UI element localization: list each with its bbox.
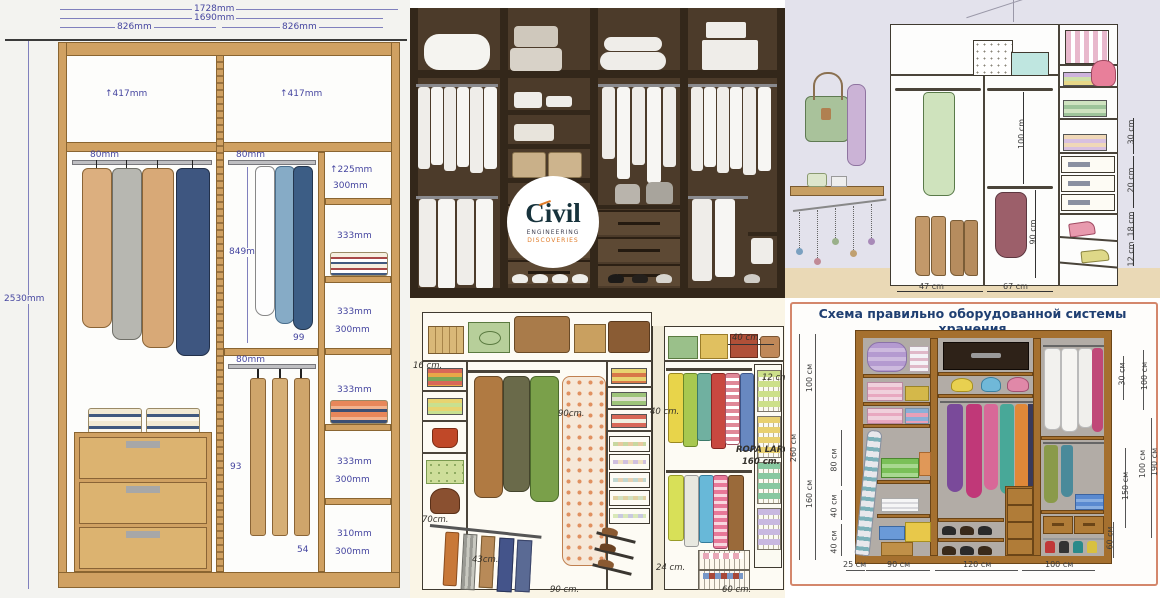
drawer-handle [1083, 523, 1095, 526]
dim-150cm: 150 см [1122, 472, 1130, 500]
dresser [74, 432, 212, 572]
dim-12cm: 12 cm [1127, 242, 1135, 267]
dim-line [728, 344, 774, 345]
folded-towels [546, 96, 572, 107]
shirt-lime [683, 373, 698, 447]
hat-blue [981, 377, 1001, 392]
white-coat [1061, 348, 1078, 432]
yellow-folded [905, 386, 929, 401]
logo-line1: ENGINEERING [527, 229, 580, 236]
panel-walkin-sketch: 16 cm. 40 cm. 12 cm. 90cm. 40 cm. 70cm. … [410, 298, 785, 598]
jewelry-strand [871, 204, 873, 238]
dim-line-height [28, 41, 29, 589]
drawer-contents [613, 478, 646, 482]
white-shirt [484, 87, 497, 169]
dim-label-1690: 1690mm [192, 14, 236, 23]
coat-tan-1 [82, 168, 112, 328]
olive-garment [1044, 445, 1058, 503]
hat-yellow [951, 378, 973, 392]
dim-90cm: 90 cm [1029, 220, 1037, 245]
handbag-clasp [821, 108, 831, 120]
dim-100cm-right-a: 100 см [1141, 362, 1149, 390]
folded-pile-left [88, 408, 142, 434]
shelf-board [325, 276, 391, 283]
shelf [1041, 436, 1104, 440]
dark-shoe [942, 546, 956, 555]
wire-basket [757, 508, 781, 550]
comp-417-right: ↑417mm [280, 90, 322, 99]
white-shirt [431, 87, 443, 165]
thin-drawer [609, 472, 650, 488]
drawer-stack [1005, 486, 1033, 556]
dark-shoe [942, 526, 956, 535]
pillow-upper [604, 37, 662, 51]
jewelry-bead [850, 250, 857, 257]
folded-pile-shelf-1 [330, 252, 388, 276]
rod [666, 368, 752, 371]
shelf-label-333a: 333mm [337, 232, 372, 241]
photo-border [410, 0, 785, 8]
drawer-handle [1068, 200, 1090, 205]
dark-shoe [978, 526, 992, 535]
rail-80-mid: 80mm [236, 151, 265, 160]
drawer-slit [618, 249, 660, 252]
printed-robe [562, 376, 606, 566]
dim-line-67 [987, 291, 1053, 292]
black-shoes [608, 274, 624, 283]
shelf-line [608, 430, 652, 432]
white-sneakers [532, 274, 548, 283]
drawer-3 [79, 527, 207, 569]
white-shirt [717, 87, 729, 173]
dim-80cm: 80 см [831, 448, 839, 471]
dim-100cm: 100 cm [1018, 119, 1026, 149]
right-partition [318, 152, 325, 572]
small-drawer [1043, 516, 1073, 534]
white-shirt [444, 87, 456, 171]
drawer-contents [613, 496, 646, 500]
dim-90cm-bottom: 90 cm. [550, 586, 579, 595]
dim-100cm-bottom: 100 см [1045, 561, 1073, 569]
logo-brand-text: Civil [525, 200, 581, 227]
shirt-blue [740, 373, 754, 451]
garment-white [684, 475, 699, 547]
rail-80-low: 80mm [236, 356, 265, 365]
shelf [748, 232, 777, 236]
white-bag [751, 238, 773, 264]
center-partition [216, 55, 224, 572]
white-shirt [457, 87, 469, 167]
dim-label-826-right: 826mm [280, 23, 319, 32]
small-drawer [1007, 488, 1033, 505]
drawer-contents [613, 442, 646, 446]
cabinet-right-side [391, 42, 400, 588]
shelf-line [422, 452, 467, 454]
shelf-line [608, 386, 652, 388]
suitcase [608, 321, 650, 353]
pink-striped-stack [867, 408, 903, 424]
dim-40cm-b: 40 см [831, 530, 839, 553]
green-box [468, 322, 510, 353]
box-oval [479, 331, 501, 345]
dim-60cm-right: 60 см [1107, 526, 1115, 549]
dim-line-120 [935, 570, 1018, 571]
drawer-handle [1068, 181, 1090, 186]
shelf-line [664, 360, 784, 362]
wicker-basket [548, 152, 582, 178]
wardrobe-design-collage: 1728mm 1690mm 826mm 826mm 2530mm ↑417mm … [0, 0, 1160, 598]
render-divider [500, 8, 508, 298]
shelf-label-333d: 333mm [337, 458, 372, 467]
pants-navy [497, 538, 515, 593]
jewelry-bead [796, 248, 803, 255]
jewelry-strand [835, 208, 837, 238]
dark-shoe [960, 526, 974, 535]
green-stack [881, 458, 919, 478]
dress-purple [947, 404, 963, 492]
dress-teal [1000, 404, 1014, 494]
hat-pink [1007, 377, 1029, 392]
shirt-darkblue [293, 166, 313, 330]
folded-linen [514, 124, 554, 141]
thin-drawer [609, 490, 650, 506]
shelf-board [325, 498, 391, 505]
dim-40cm-top: 40 cm. [732, 334, 761, 343]
hanging-rail-left [72, 160, 212, 165]
shelf-label-300d: 300mm [335, 548, 370, 557]
black-shoes [632, 274, 648, 283]
hat-box-upper [514, 26, 558, 47]
dim-25cm: 25 см [843, 561, 866, 569]
white-shirt [758, 87, 771, 171]
shelf [938, 394, 1033, 398]
label-ropa-larga: ROPA LARGA [736, 446, 785, 455]
pants-orange [443, 532, 460, 587]
garment-chartreuse [668, 475, 684, 541]
shoes-yellow [1087, 541, 1097, 553]
shelf-trinket [831, 176, 847, 187]
wicker-basket [512, 152, 546, 178]
long-garment [476, 199, 493, 289]
dim-label-93: 93 [230, 463, 241, 472]
garment-bag-maroon [995, 192, 1027, 258]
render-divider [590, 8, 598, 298]
drawer-contents [613, 514, 646, 518]
render-divider [680, 8, 688, 298]
rod-upper-mid [987, 88, 1053, 91]
shelf [598, 205, 680, 209]
dark-shoe [978, 546, 992, 555]
rod [1043, 345, 1104, 347]
shelf-line [608, 408, 652, 410]
drawer-1 [79, 437, 207, 479]
dim-40cm-a: 40 см [831, 494, 839, 517]
cabinet-base [58, 572, 400, 588]
drawer-handle [1052, 523, 1064, 526]
shelf-line [422, 360, 652, 362]
render-drawer [598, 237, 680, 262]
pillow-lower [600, 52, 666, 70]
dim-line-100 [815, 334, 816, 424]
shelf [508, 110, 590, 115]
top-wall-line [5, 39, 407, 41]
render-divider [777, 8, 785, 298]
coat-gray [112, 168, 142, 340]
yellow-box [905, 522, 931, 542]
dim-90cm: 90 см [887, 561, 910, 569]
shirt-white [255, 166, 275, 316]
dim-47cm: 47 cm [919, 283, 944, 291]
drawer-2 [79, 482, 207, 524]
shelf-board [325, 424, 391, 431]
dim-24cm: 24 cm. [656, 564, 685, 573]
rod-lower [1043, 442, 1104, 444]
shelf-board [325, 348, 391, 355]
white-shirt [743, 87, 756, 175]
jewelry-bead [868, 238, 875, 245]
dim-16cm: 16 cm. [413, 362, 442, 371]
yellow-box [700, 334, 728, 359]
dress-orange [1015, 404, 1028, 498]
dim-100cm-right-b: 100 см [1139, 450, 1147, 478]
brown-coat [474, 376, 503, 498]
dim-line-160 [815, 424, 816, 560]
folded-stack [611, 392, 647, 406]
hanging-rail-mid [228, 160, 316, 165]
white-coat [1044, 348, 1061, 430]
long-brown-coat [728, 475, 744, 557]
olive-coat [503, 376, 530, 492]
shoe-shelf [938, 538, 1004, 542]
hat-box [760, 336, 780, 358]
white-box-lower [702, 40, 758, 70]
wire-basket-floor [698, 550, 750, 570]
shelf-line [1058, 86, 1118, 88]
hanging-towel [617, 87, 630, 179]
shoes-dark [1059, 541, 1069, 553]
dim-190cm: 190 см [1151, 448, 1159, 476]
wood-box [881, 542, 913, 556]
long-garment [438, 199, 455, 289]
dim-90cm-mid: 90cm. [558, 410, 584, 419]
boot [950, 220, 964, 276]
white-stack [881, 498, 919, 512]
striped-box [1065, 30, 1109, 64]
folded-pile-right [146, 408, 200, 434]
shelf-label-333c: 333mm [337, 386, 372, 395]
white-sneakers [552, 274, 568, 283]
jewelry-bead [814, 258, 821, 265]
wall-shelf [790, 186, 884, 196]
boot [964, 220, 978, 276]
ceiling-line [966, 0, 1023, 18]
render-drawer [598, 210, 680, 235]
drawer-handle [1068, 162, 1090, 167]
shelf [863, 374, 930, 378]
shelf-label-310: 310mm [337, 530, 372, 539]
dim-line-25 [846, 570, 865, 571]
sketch-drawer [1061, 194, 1115, 211]
dim-67cm: 67 cm [1003, 283, 1028, 291]
dim-30cm-right: 30 см [1119, 362, 1127, 385]
trunk [514, 316, 570, 353]
white-coat [1078, 348, 1093, 428]
jewelry-strand [799, 212, 801, 248]
basket-contents [703, 573, 743, 579]
drawer-slit [618, 222, 660, 225]
metal-handle [971, 353, 1001, 358]
dim-line-80 [841, 430, 842, 486]
heels [656, 274, 672, 283]
panel-blueprint: 1728mm 1690mm 826mm 826mm 2530mm ↑417mm … [0, 0, 410, 598]
cabinet-top-board [58, 42, 400, 56]
small-drawer [1007, 505, 1033, 522]
dress-magenta [966, 404, 982, 498]
civil-logo: Civil ENGINEERING DISCOVERIES [507, 176, 599, 268]
garment-bag [692, 199, 712, 281]
dim-line-40a [841, 490, 842, 520]
render-divider [410, 8, 418, 298]
shirt-lightblue [275, 166, 295, 324]
green-box [668, 336, 698, 359]
dim-label-826-left: 826mm [115, 23, 154, 32]
magenta-coat [1092, 348, 1103, 432]
white-shirt [418, 87, 430, 169]
shelf-line [422, 390, 467, 392]
dark-shoe [960, 546, 974, 555]
dim-60cm: 60 cm. [722, 586, 751, 595]
folded-stack-white-pink [909, 346, 929, 372]
shelf-label-225: ↑225mm [330, 166, 372, 175]
dim-260cm: 260 см [790, 434, 798, 462]
dim-label-height: 2530mm [2, 295, 46, 304]
dim-line-100b [1022, 570, 1095, 571]
dim-12cm: 12 cm. [762, 374, 785, 383]
folded-stack-pastel [1063, 134, 1107, 151]
garment-bag [715, 199, 735, 277]
folded-stack [611, 368, 647, 384]
hanging-towel [647, 87, 661, 183]
partition-line [983, 74, 985, 286]
rod [666, 470, 752, 473]
drawer-handle [126, 441, 160, 448]
thin-drawer [609, 436, 650, 452]
divider [930, 338, 938, 556]
drawer-contents [613, 460, 646, 464]
small-box [574, 324, 606, 353]
shelf-line [1058, 213, 1118, 215]
folded-towels [514, 92, 542, 108]
red-hat [432, 428, 458, 448]
dim-label-99: 99 [293, 334, 304, 343]
hanging-towel [663, 87, 676, 167]
trousers-3 [294, 378, 310, 536]
dim-line-90 [866, 570, 930, 571]
dim-30cm: 30 cm [1127, 120, 1135, 145]
shoe-shelf [938, 518, 1004, 522]
wicker-box [428, 326, 464, 354]
rod-lower [987, 186, 1053, 189]
drawer-handle [126, 486, 160, 493]
blue-tray [879, 526, 905, 540]
dotted-box [973, 40, 1013, 76]
brown-bag [430, 488, 460, 514]
dim-70cm: 70cm. [422, 516, 448, 525]
blue-pink-stack [905, 408, 929, 424]
orange-folded [919, 452, 931, 476]
rolled-duvet [424, 34, 490, 70]
purple-scarf [847, 84, 866, 166]
dim-18cm: 18 cm [1127, 212, 1135, 237]
dim-label-54: 54 [297, 546, 308, 555]
divider [1033, 338, 1041, 556]
shelf [863, 424, 930, 428]
render-bottom [410, 288, 785, 298]
dim-160cm: 160 см [806, 480, 814, 508]
dress-pink [984, 404, 998, 490]
thin-drawer [609, 508, 650, 524]
teal-garment [1061, 445, 1073, 497]
thin-drawer [609, 454, 650, 470]
long-garment [419, 199, 436, 287]
small-drawer [1007, 539, 1033, 555]
shoes [744, 274, 760, 283]
shelf [877, 480, 930, 484]
partition [606, 362, 608, 590]
dim-120cm: 120 см [963, 561, 991, 569]
shelf [938, 372, 1033, 376]
shelf-board [325, 198, 391, 205]
dotted-green-box [426, 460, 464, 484]
panel-storage-scheme: Схема правильно оборудованной системы хр… [785, 298, 1160, 598]
wall-corner-line [1013, 0, 1014, 22]
folded-stack [611, 414, 647, 428]
boot [915, 216, 930, 276]
dim-line-47 [897, 291, 983, 292]
shoes-teal [1073, 541, 1083, 553]
white-box-upper [706, 22, 746, 38]
jeans [515, 540, 533, 593]
handbag-strap [813, 72, 843, 100]
white-sneakers [572, 274, 588, 283]
rod [468, 370, 560, 373]
shelf-label-333b: 333mm [337, 308, 372, 317]
shelf [863, 402, 930, 406]
pink-striped-stack [867, 382, 903, 401]
blue-stack [1075, 494, 1104, 510]
teal-box [1011, 52, 1049, 76]
shelf-line [1058, 152, 1118, 154]
shelf [877, 514, 930, 518]
folded-pile-shelf-2 [330, 400, 388, 424]
sketch-drawer [1061, 156, 1115, 173]
dark-top-drawer [943, 342, 1029, 370]
white-shirt [691, 87, 703, 171]
basket-contents [703, 553, 743, 559]
coat-tan-2 [142, 168, 174, 348]
small-drawer [1074, 516, 1104, 534]
shirt-teal [697, 373, 712, 441]
dim-line-40b [841, 524, 842, 556]
label-ropa-height: 160 cm. [742, 458, 780, 467]
cabinet-left-side [58, 42, 67, 588]
hanging-towel [632, 87, 645, 165]
white-sneakers [512, 274, 528, 283]
green-dress [923, 92, 955, 196]
rod [940, 401, 1033, 403]
green-coat [530, 376, 559, 502]
trousers-1 [250, 378, 266, 536]
